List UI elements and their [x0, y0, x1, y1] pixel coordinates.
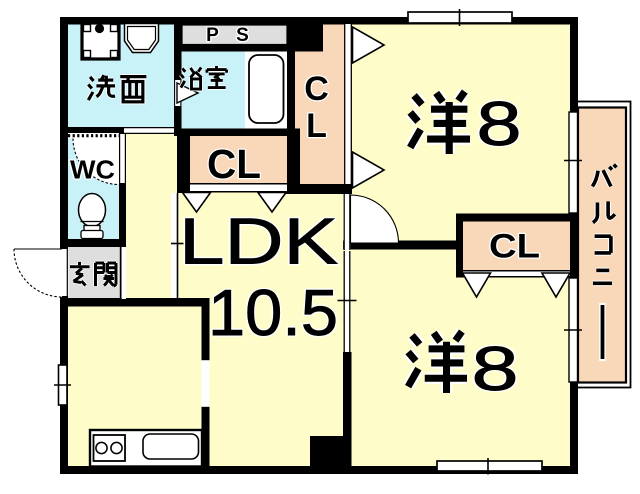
- svg-text:WC: WC: [70, 155, 115, 185]
- svg-text:CL: CL: [489, 228, 540, 266]
- svg-text:C: C: [304, 70, 329, 108]
- svg-text:CL: CL: [207, 141, 261, 187]
- svg-text:L: L: [306, 107, 327, 145]
- svg-text:LDK: LDK: [179, 205, 338, 278]
- svg-text:8: 8: [472, 335, 519, 404]
- svg-text:P: P: [206, 25, 219, 46]
- svg-text:8: 8: [477, 90, 522, 159]
- svg-text:S: S: [236, 25, 249, 46]
- svg-text:10.5: 10.5: [208, 276, 338, 349]
